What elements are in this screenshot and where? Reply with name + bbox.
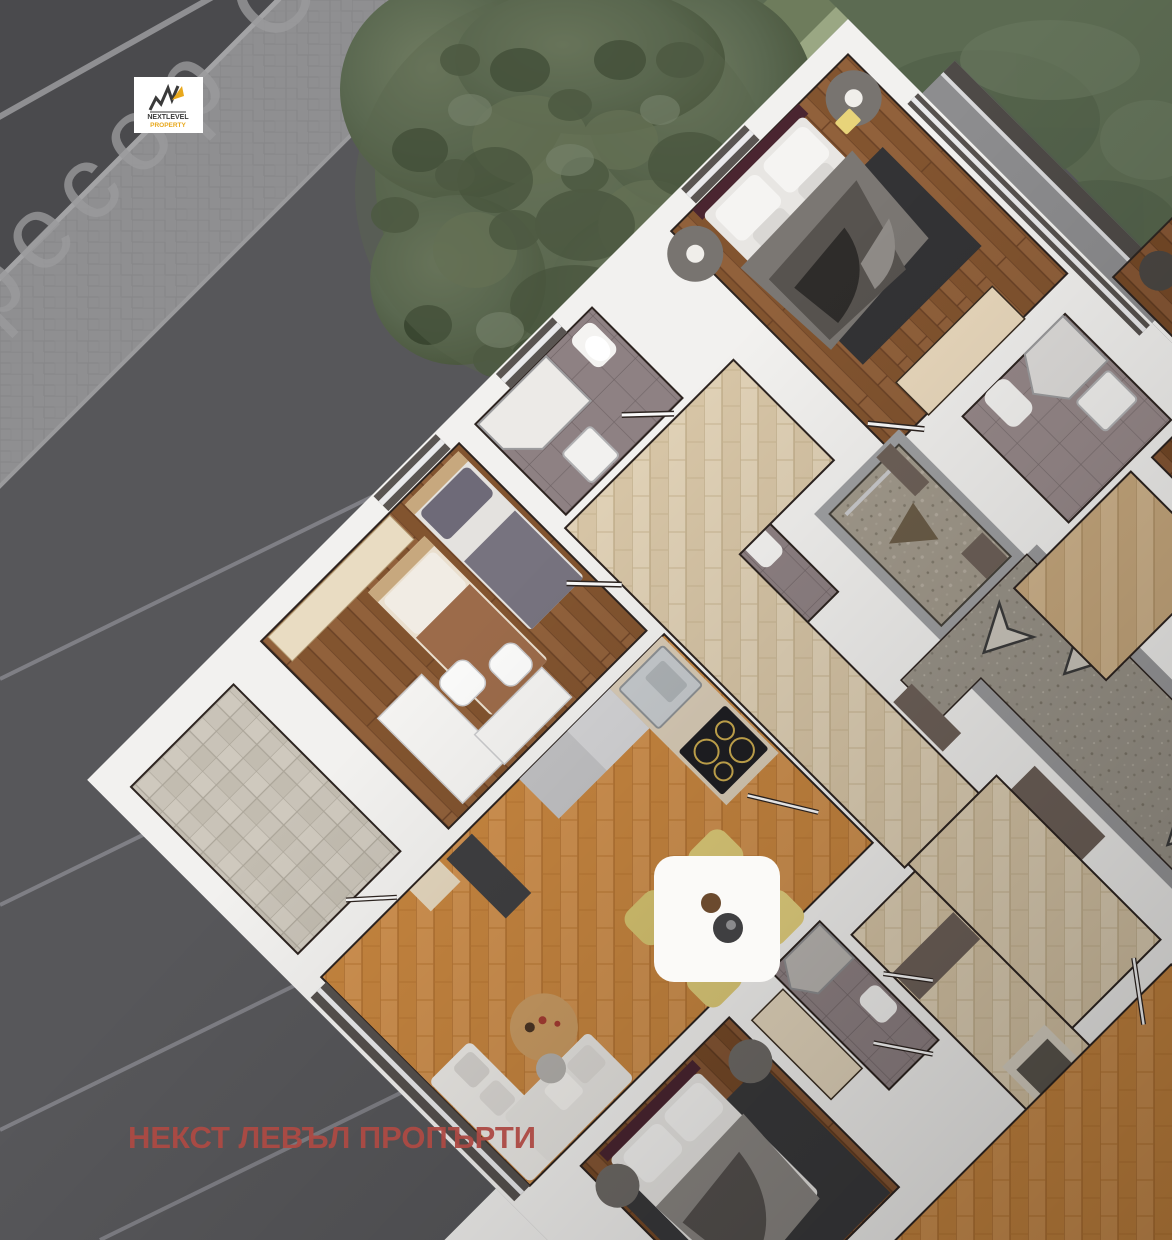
svg-text:НЕКСТ ЛЕВЪЛ ПРОПЪРТИ: НЕКСТ ЛЕВЪЛ ПРОПЪРТИ — [128, 1120, 536, 1155]
svg-text:PROPERTY: PROPERTY — [150, 122, 186, 129]
svg-text:NEXTLEVEL: NEXTLEVEL — [147, 114, 189, 121]
